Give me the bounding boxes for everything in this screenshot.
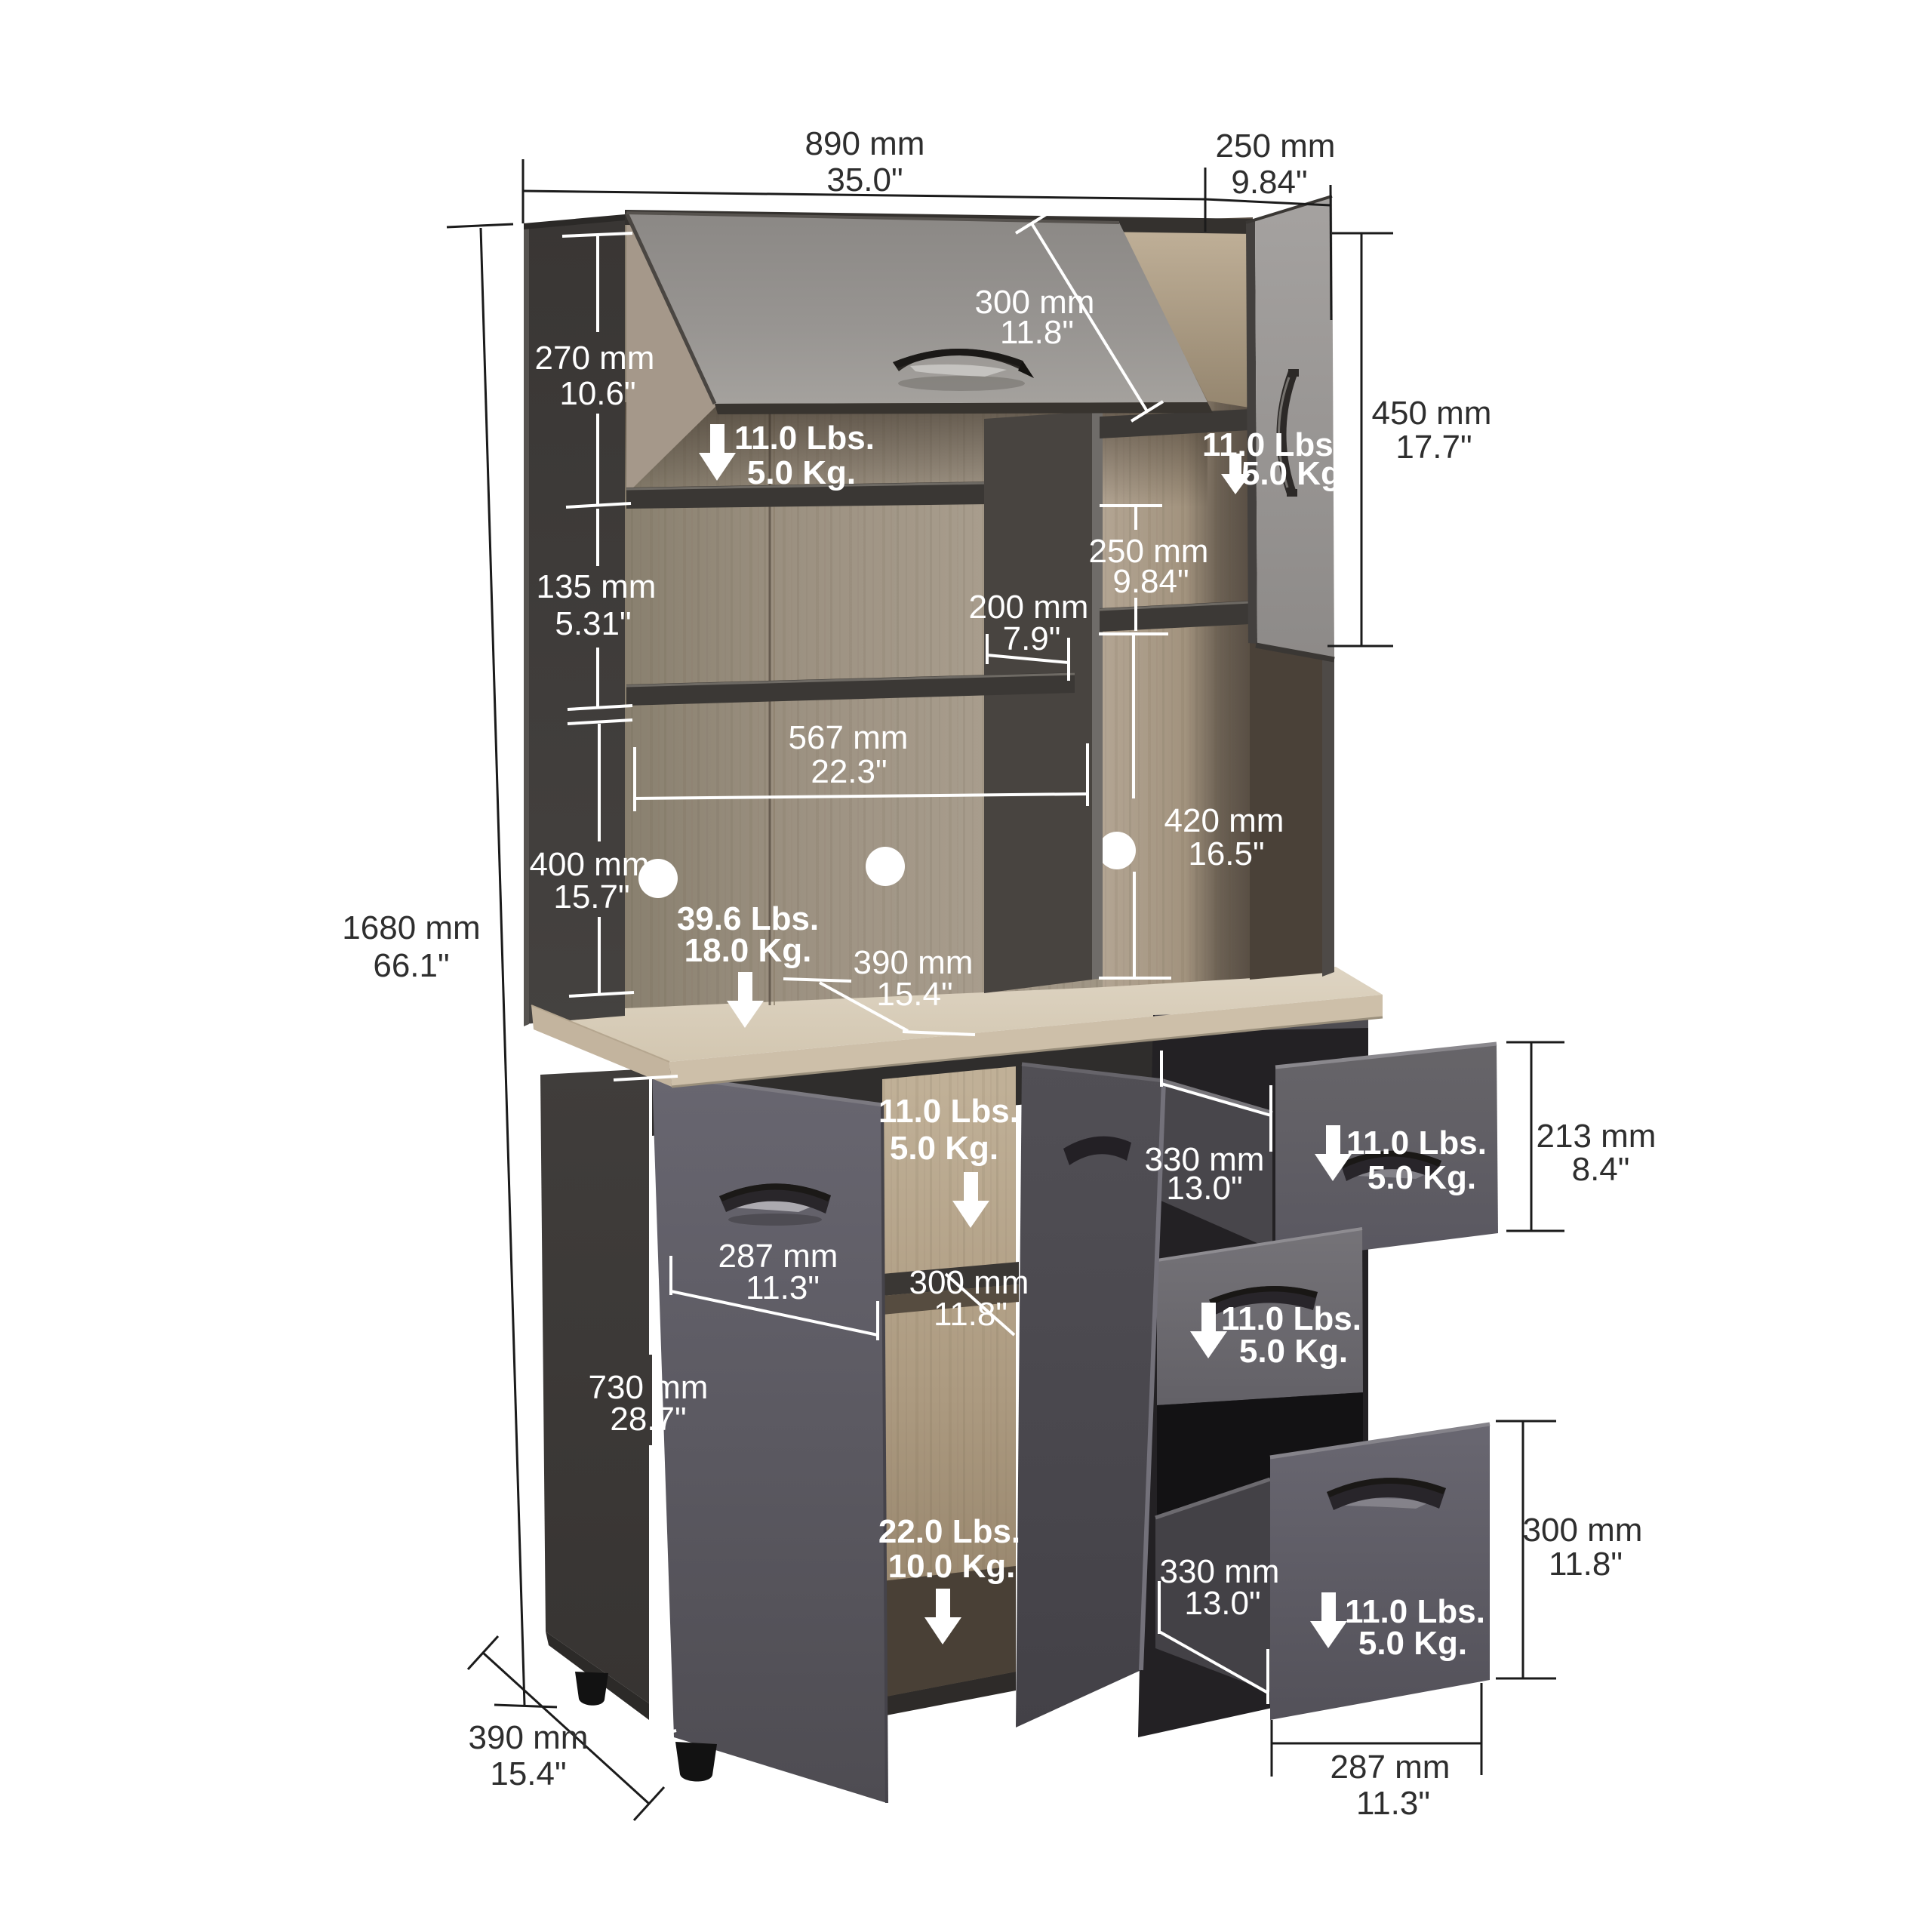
svg-text:5.0 Kg.: 5.0 Kg. [1367,1159,1476,1196]
svg-text:11.3": 11.3" [1356,1785,1430,1822]
svg-text:9.84": 9.84" [1112,563,1189,600]
svg-text:300 mm: 300 mm [1523,1512,1643,1549]
svg-text:5.0 Kg.: 5.0 Kg. [1239,1333,1348,1370]
svg-text:400 mm: 400 mm [530,846,650,883]
svg-text:5.0 Kg.: 5.0 Kg. [747,454,856,491]
svg-text:11.8": 11.8" [934,1296,1008,1333]
svg-text:15.4": 15.4" [876,976,952,1013]
svg-text:17.7": 17.7" [1395,429,1472,466]
svg-text:5.31": 5.31" [555,605,631,642]
svg-text:390 mm: 390 mm [469,1719,589,1756]
svg-text:5.0 Kg.: 5.0 Kg. [1358,1625,1467,1662]
svg-text:287 mm: 287 mm [1331,1749,1451,1786]
svg-text:135 mm: 135 mm [537,568,657,605]
svg-text:13.0": 13.0" [1166,1170,1242,1207]
svg-text:35.0": 35.0" [826,162,903,198]
svg-text:10.6": 10.6" [559,375,635,412]
svg-text:15.7": 15.7" [553,878,629,915]
svg-text:5.0 Kg.: 5.0 Kg. [890,1130,998,1167]
svg-text:66.1": 66.1" [373,947,449,984]
svg-text:213 mm: 213 mm [1537,1118,1657,1155]
svg-text:11.0 Lbs.: 11.0 Lbs. [734,420,875,457]
svg-text:22.3": 22.3" [811,753,887,790]
svg-text:250 mm: 250 mm [1216,128,1336,165]
svg-text:13.0": 13.0" [1184,1585,1260,1622]
svg-text:8.4": 8.4" [1572,1151,1630,1188]
svg-text:11.0 Lbs.: 11.0 Lbs. [878,1093,1019,1130]
svg-text:1680 mm: 1680 mm [342,909,480,946]
svg-text:11.8": 11.8" [1549,1546,1623,1583]
svg-text:567 mm: 567 mm [789,719,909,756]
svg-text:18.0 Kg.: 18.0 Kg. [685,932,812,969]
svg-text:15.4": 15.4" [490,1755,566,1792]
svg-text:9.84": 9.84" [1231,164,1307,201]
svg-text:11.0 Lbs.: 11.0 Lbs. [1346,1124,1487,1161]
svg-text:22.0 Lbs.: 22.0 Lbs. [878,1513,1020,1550]
svg-text:450 mm: 450 mm [1372,395,1492,432]
svg-text:270 mm: 270 mm [535,340,655,377]
svg-text:7.9": 7.9" [1003,620,1061,657]
svg-text:10.0 Kg.: 10.0 Kg. [888,1548,1016,1585]
svg-text:28.7": 28.7" [610,1401,686,1438]
svg-text:11.8": 11.8" [1000,314,1074,351]
svg-text:11.3": 11.3" [746,1269,820,1306]
svg-text:890 mm: 890 mm [805,125,925,162]
svg-text:420 mm: 420 mm [1164,802,1284,839]
svg-text:16.5": 16.5" [1188,835,1264,872]
svg-text:11.0 Lbs.: 11.0 Lbs. [1221,1300,1361,1337]
svg-text:5.0 Kg.: 5.0 Kg. [1241,455,1350,492]
